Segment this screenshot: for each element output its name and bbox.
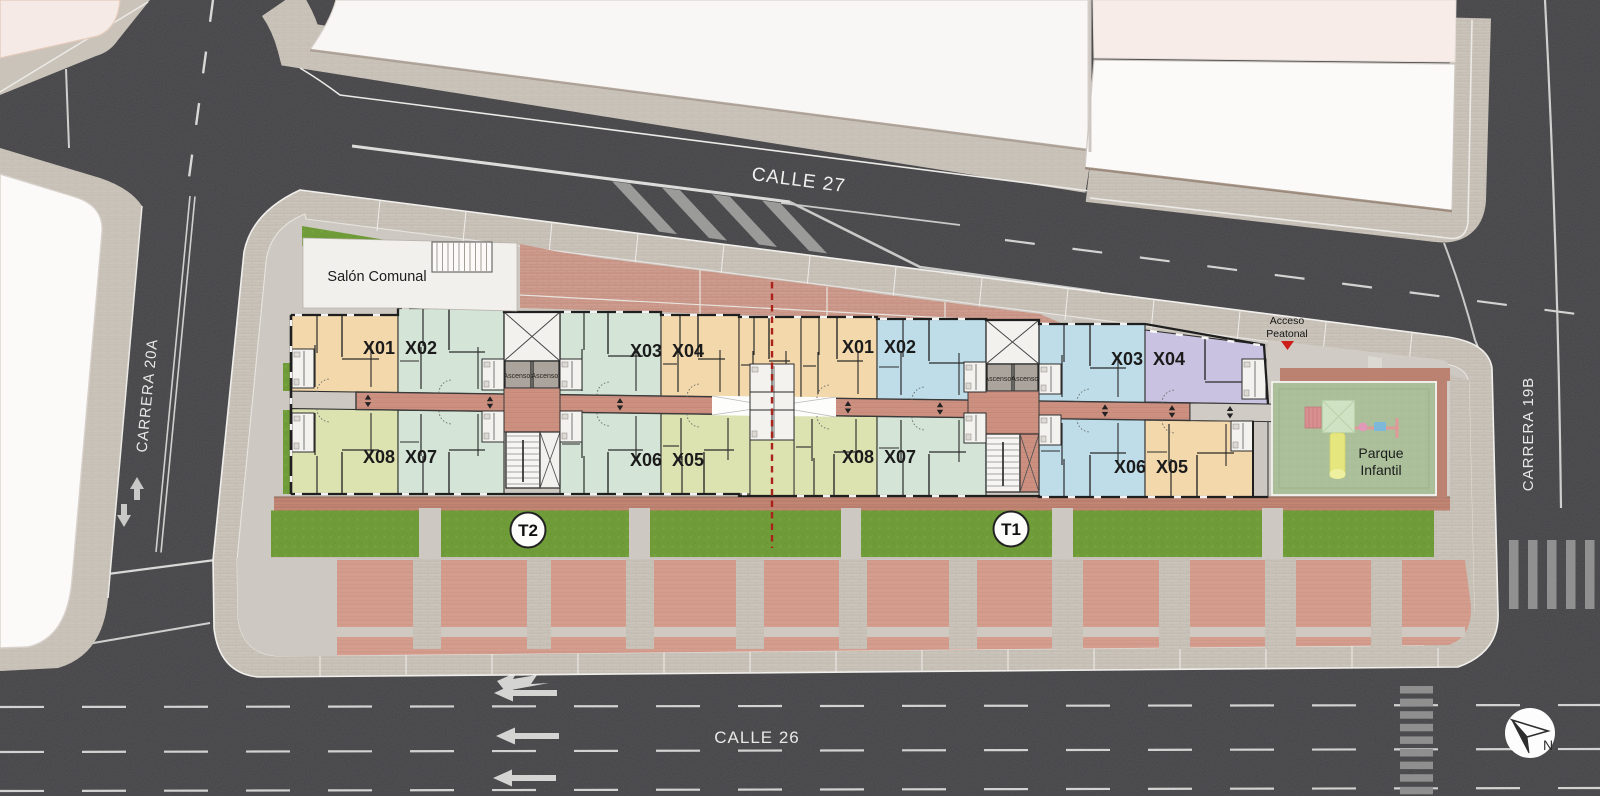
svg-text:X04: X04: [672, 341, 704, 361]
svg-text:X02: X02: [405, 338, 437, 358]
svg-text:X04: X04: [1153, 349, 1185, 369]
svg-text:X08: X08: [363, 447, 395, 467]
svg-text:X02: X02: [884, 337, 916, 357]
svg-text:CALLE 26: CALLE 26: [714, 728, 800, 747]
svg-text:X01: X01: [363, 338, 395, 358]
svg-text:Acceso: Acceso: [1270, 315, 1305, 327]
svg-text:X03: X03: [630, 341, 662, 361]
svg-text:Parque: Parque: [1358, 445, 1403, 461]
svg-text:Ascensor: Ascensor: [503, 373, 533, 380]
svg-text:X06: X06: [1114, 457, 1146, 477]
svg-text:X07: X07: [405, 447, 437, 467]
svg-text:N: N: [1543, 737, 1553, 753]
svg-text:T1: T1: [1001, 520, 1021, 539]
svg-text:Ascensor: Ascensor: [531, 373, 561, 380]
svg-text:Salón Comunal: Salón Comunal: [327, 269, 426, 285]
svg-text:X05: X05: [1156, 457, 1188, 477]
svg-text:X03: X03: [1111, 349, 1143, 369]
svg-text:X05: X05: [672, 450, 704, 470]
svg-text:X07: X07: [884, 447, 916, 467]
svg-text:Ascensor: Ascensor: [984, 376, 1014, 383]
svg-text:X01: X01: [842, 337, 874, 357]
svg-text:Ascensor: Ascensor: [1011, 376, 1041, 383]
svg-text:T2: T2: [518, 521, 538, 540]
svg-text:Peatonal: Peatonal: [1266, 328, 1307, 340]
svg-text:X06: X06: [630, 450, 662, 470]
svg-text:Infantil: Infantil: [1360, 462, 1401, 478]
svg-text:X08: X08: [842, 447, 874, 467]
svg-text:CARRERA 19B: CARRERA 19B: [1520, 377, 1537, 491]
